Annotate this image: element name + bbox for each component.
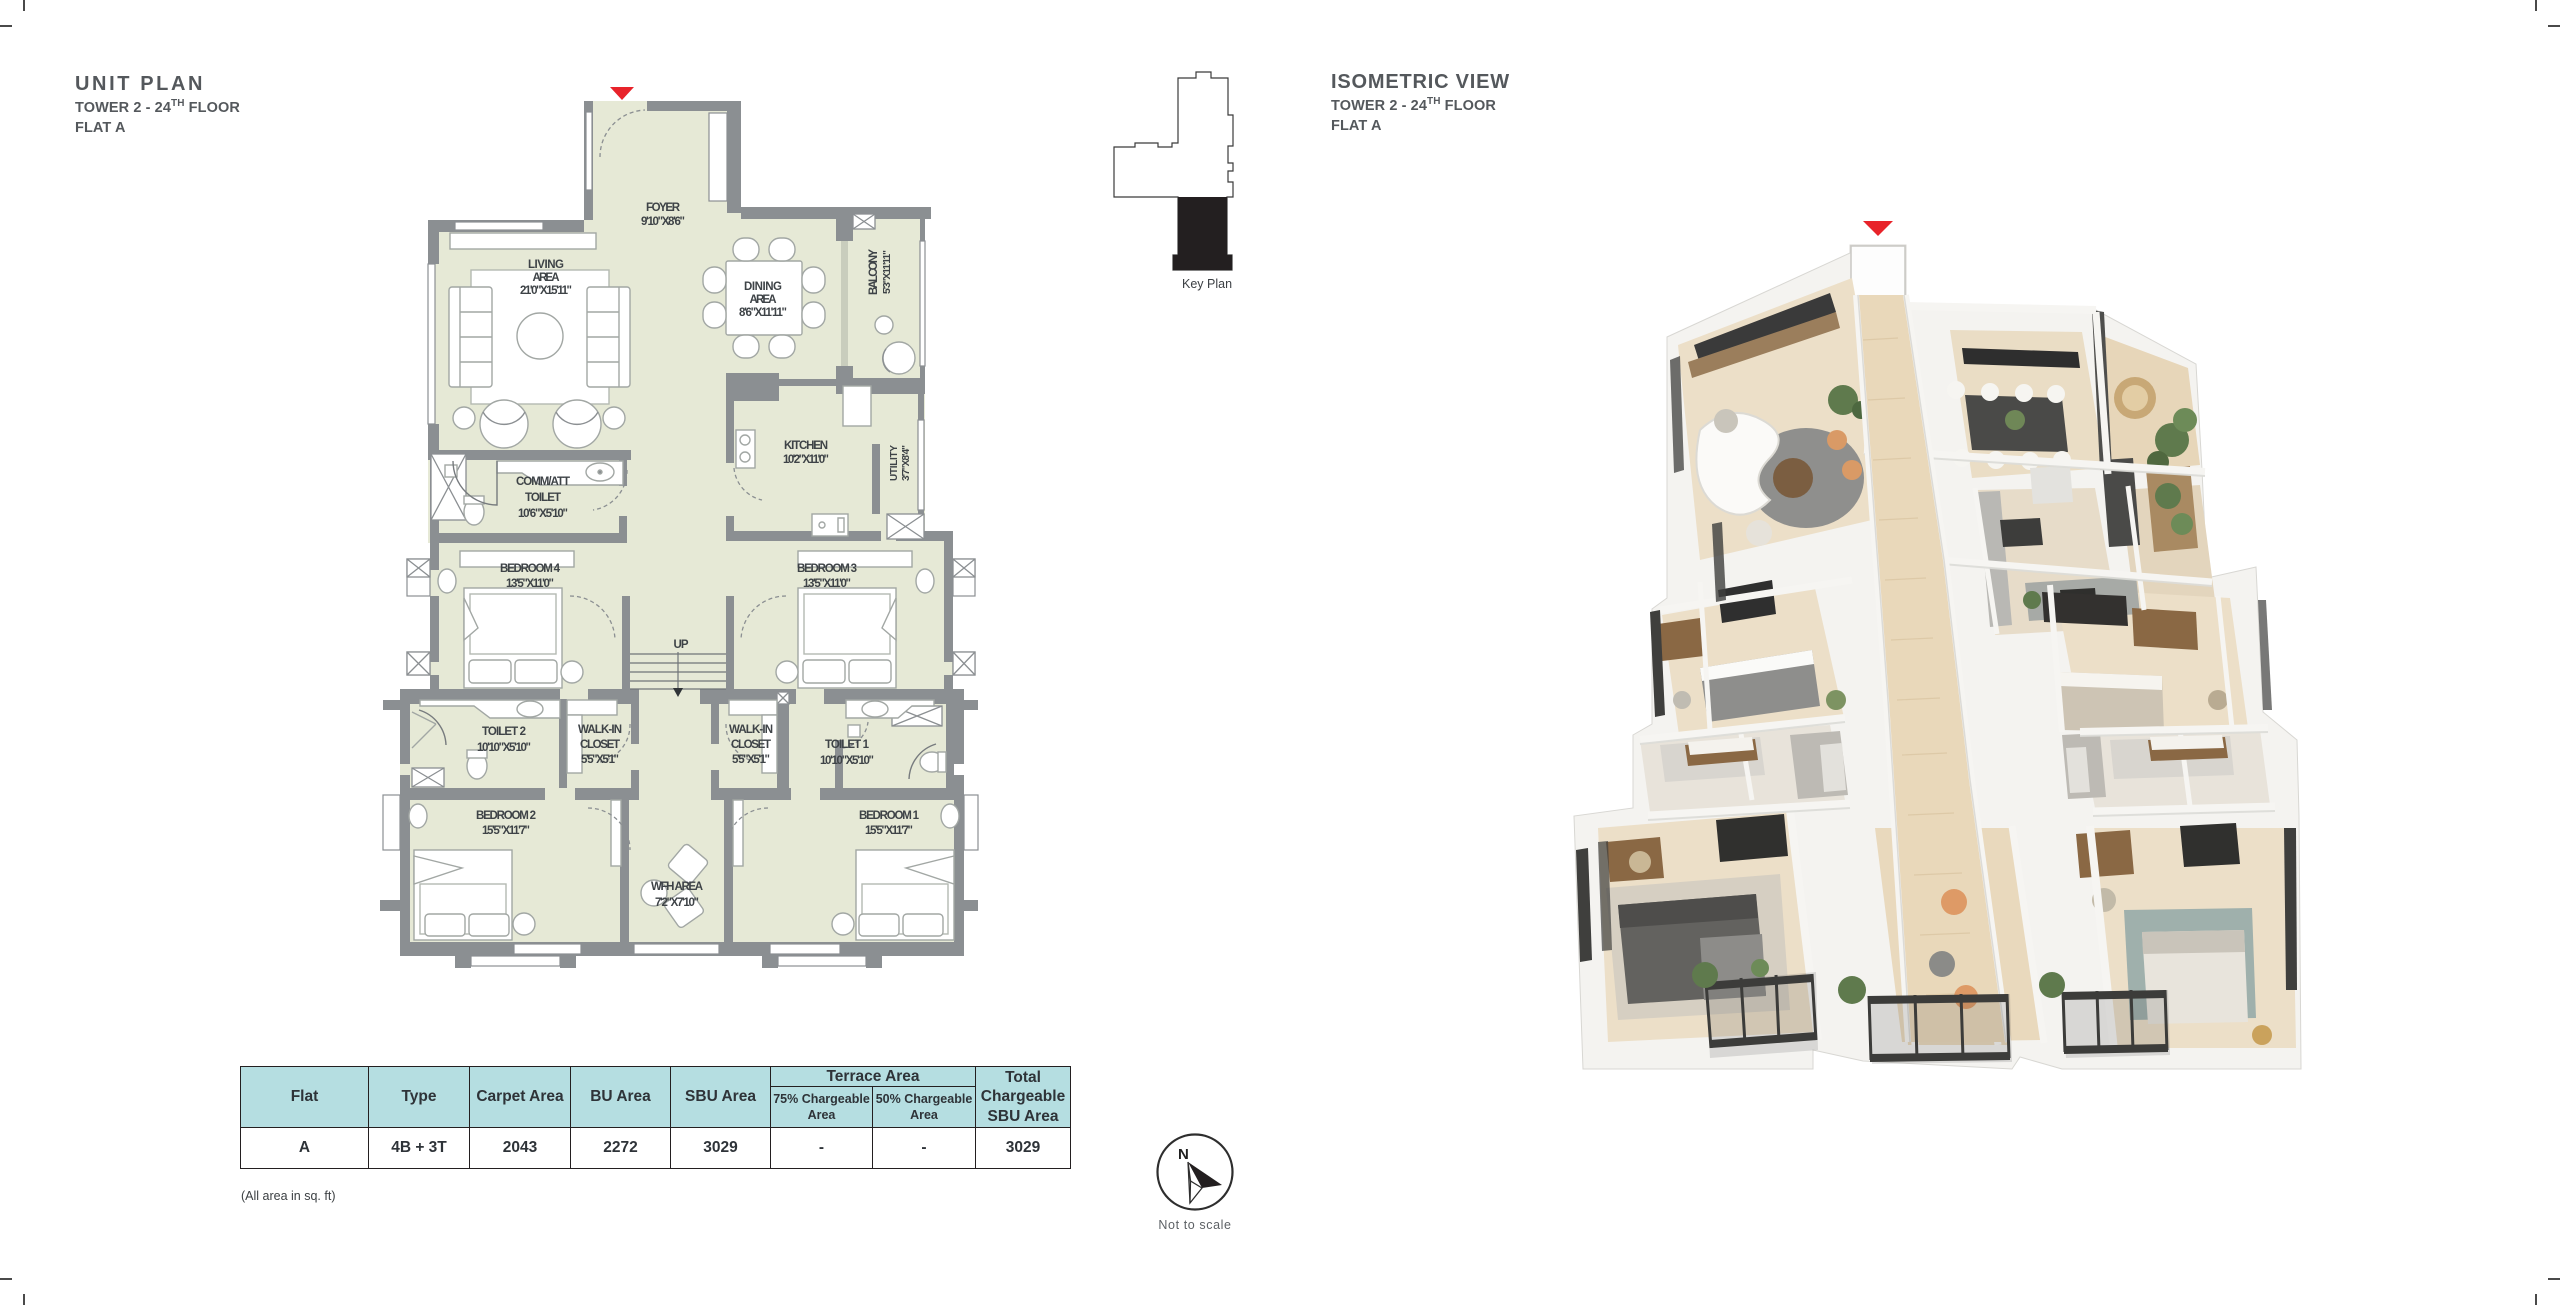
svg-text:TOILET 2: TOILET 2 — [482, 726, 526, 738]
svg-text:15'5"X11'7": 15'5"X11'7" — [865, 825, 913, 837]
svg-text:WALK-IN: WALK-IN — [578, 724, 622, 736]
svg-text:10'10"X5'10": 10'10"X5'10" — [820, 755, 874, 767]
svg-text:5'3"X11'11": 5'3"X11'11" — [881, 250, 893, 294]
svg-text:13'5"X11'0": 13'5"X11'0" — [506, 578, 554, 590]
svg-text:BEDROOM 3: BEDROOM 3 — [797, 563, 857, 575]
svg-text:UP: UP — [674, 639, 689, 651]
svg-text:BEDROOM 2: BEDROOM 2 — [476, 810, 536, 822]
svg-text:10'2"X11'0": 10'2"X11'0" — [783, 454, 829, 466]
svg-text:DINING: DINING — [744, 281, 782, 293]
svg-text:TOILET 1: TOILET 1 — [825, 739, 870, 751]
svg-text:BALCONY: BALCONY — [868, 249, 880, 295]
svg-text:N: N — [1178, 1146, 1189, 1163]
svg-text:UTILITY: UTILITY — [889, 445, 900, 481]
svg-text:WFH AREA: WFH AREA — [651, 881, 703, 893]
svg-text:15'5"X11'7": 15'5"X11'7" — [482, 825, 530, 837]
svg-text:BEDROOM 1: BEDROOM 1 — [859, 810, 920, 822]
svg-text:21'0"X15'11": 21'0"X15'11" — [520, 285, 572, 297]
svg-text:AREA: AREA — [750, 294, 777, 306]
svg-text:LIVING: LIVING — [528, 259, 564, 271]
svg-text:CLOSET: CLOSET — [580, 739, 620, 751]
svg-text:CLOSET: CLOSET — [731, 739, 771, 751]
svg-text:3'7"X8'4": 3'7"X8'4" — [901, 445, 912, 481]
svg-text:Key Plan: Key Plan — [1182, 277, 1232, 291]
svg-text:KITCHEN: KITCHEN — [784, 440, 828, 452]
svg-text:9'10"X8'6": 9'10"X8'6" — [641, 216, 685, 228]
svg-text:COMM/ATT: COMM/ATT — [516, 476, 570, 488]
svg-text:10'10"X5'10": 10'10"X5'10" — [477, 742, 531, 754]
svg-text:7'2"X7'10": 7'2"X7'10" — [655, 897, 699, 909]
svg-text:5'5"X5'1": 5'5"X5'1" — [732, 754, 770, 766]
svg-text:AREA: AREA — [533, 272, 560, 284]
svg-text:8'6"X11'11": 8'6"X11'11" — [739, 307, 787, 319]
svg-text:TOILET: TOILET — [525, 492, 561, 504]
svg-text:FOYER: FOYER — [646, 202, 681, 214]
svg-text:BEDROOM 4: BEDROOM 4 — [500, 563, 561, 575]
svg-text:WALK-IN: WALK-IN — [729, 724, 773, 736]
svg-text:5'5"X5'1": 5'5"X5'1" — [581, 754, 619, 766]
svg-text:13'5"X11'0": 13'5"X11'0" — [803, 578, 851, 590]
svg-text:10'6"X5'10": 10'6"X5'10" — [518, 508, 568, 520]
